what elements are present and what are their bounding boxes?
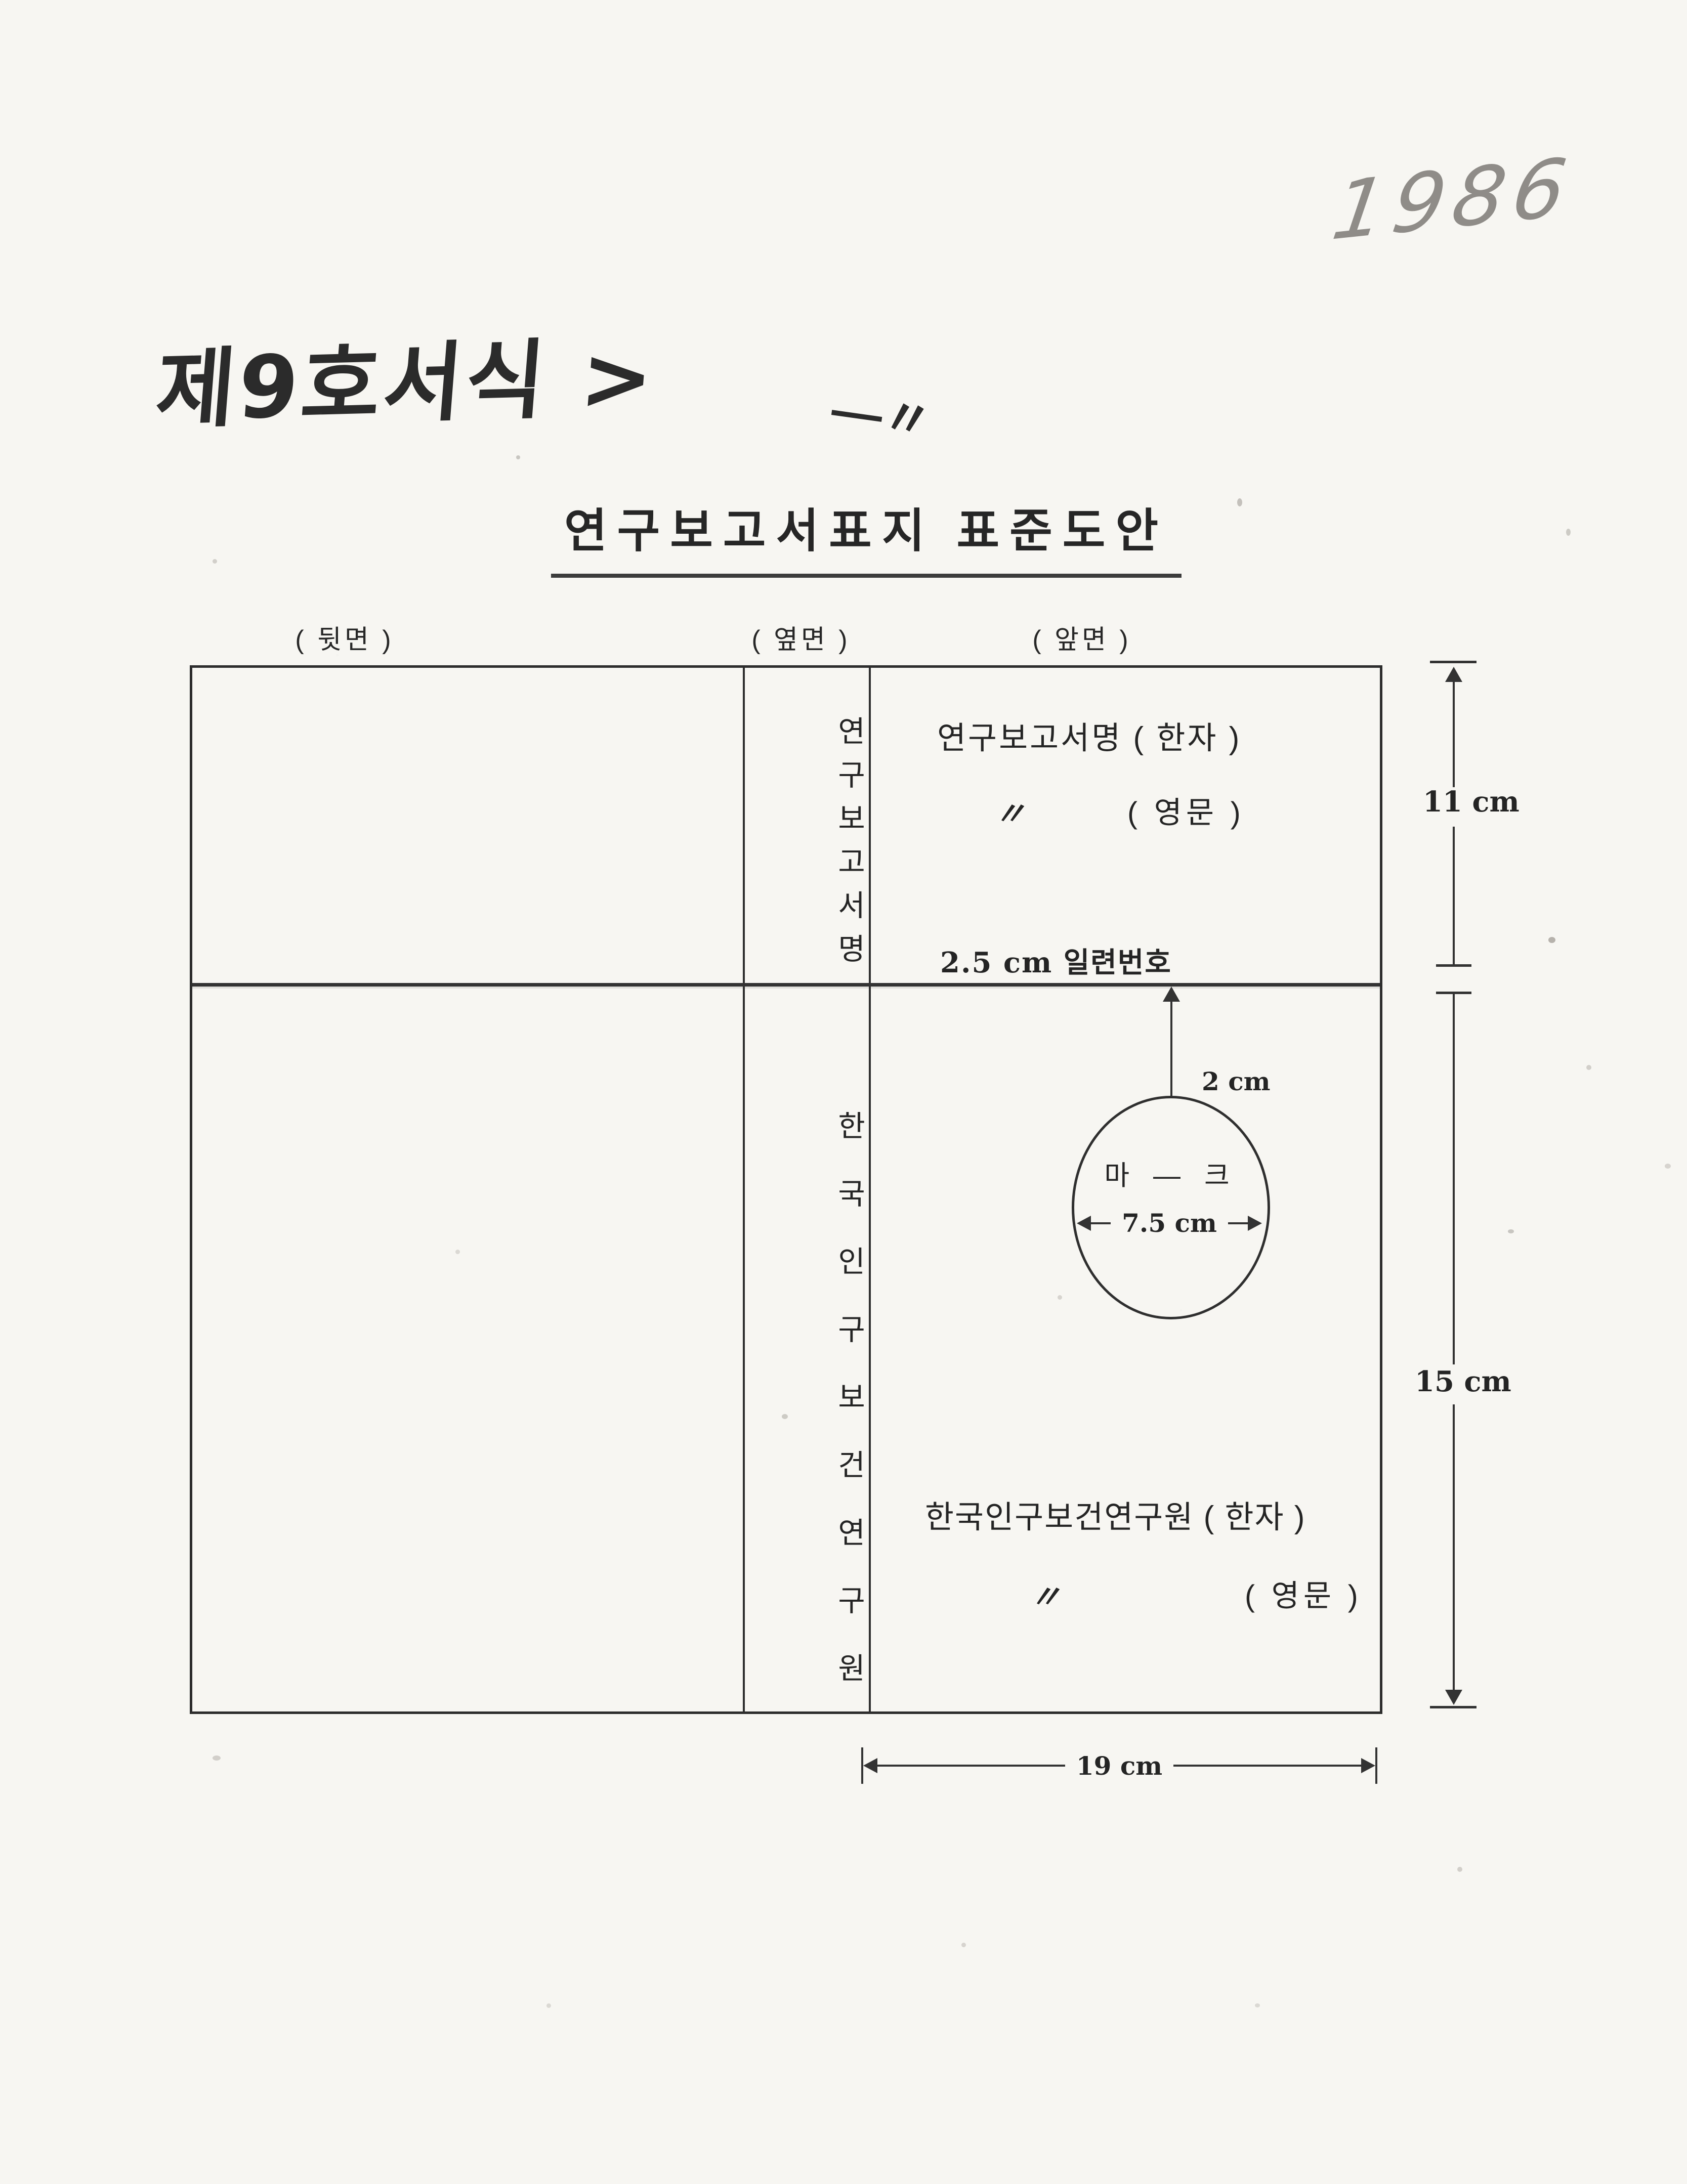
width-dimension: 19 cm	[861, 1747, 1377, 1784]
emblem-label: 마 ― 크	[1074, 1153, 1268, 1193]
scan-speckle	[1255, 2003, 1260, 2007]
handwritten-form-number: 제9호서식 >	[152, 307, 661, 445]
spine-left-border	[743, 668, 745, 1711]
front-institute-english: ( 영문 )	[1245, 1571, 1362, 1615]
mark-diameter-dimension: 7.5 cm	[1077, 1208, 1262, 1238]
left-arrowhead-icon	[863, 1758, 877, 1773]
front-report-title-hanja: 연구보고서명 ( 한자 )	[937, 712, 1241, 758]
scan-speckle	[1457, 1867, 1462, 1872]
front-institute-ditto: 〃	[1026, 1571, 1072, 1617]
scan-speckle	[546, 2003, 551, 2008]
spine-report-title-vertical: 연구보고서명	[827, 716, 870, 977]
scan-speckle	[782, 1414, 788, 1419]
dimension-line	[1453, 994, 1455, 1364]
panel-label-front: ( 앞면 )	[1032, 618, 1131, 656]
top-height-label: 11 cm	[1423, 785, 1520, 819]
width-label: 19 cm	[1065, 1751, 1173, 1781]
spine-institute-vertical: 한국인구보건연구원	[827, 1110, 870, 1721]
scan-speckle	[1586, 1065, 1591, 1070]
cover-diagram: 연구보고서명 한국인구보건연구원 연구보고서명 ( 한자 ) 〃 ( 영문 ) …	[190, 665, 1382, 1714]
dimension-line	[1091, 1222, 1111, 1224]
front-report-title-english: ( 영문 )	[1127, 788, 1245, 832]
right-arrowhead-icon	[1248, 1216, 1262, 1231]
scan-speckle	[961, 1943, 966, 1947]
page-title: 연구보고서표지 표준도안	[551, 493, 1182, 578]
handwritten-dash-mark: ―〃	[828, 368, 938, 454]
left-arrowhead-icon	[1077, 1216, 1091, 1231]
dimension-tick	[1375, 1747, 1377, 1784]
horizontal-divider	[192, 983, 1380, 987]
scan-speckle	[1665, 1164, 1671, 1169]
mark-diameter-label: 7.5 cm	[1111, 1208, 1228, 1238]
scan-speckle	[1548, 937, 1555, 943]
scan-speckle	[1566, 529, 1571, 536]
down-arrowhead-icon	[1445, 1690, 1462, 1705]
dimension-line	[1173, 1765, 1361, 1767]
mark-offset-label: 2 cm	[1202, 1066, 1271, 1096]
dimension-line	[1453, 827, 1455, 964]
dimension-line	[1453, 1404, 1455, 1694]
scanned-page: 1986 제9호서식 > ―〃 연구보고서표지 표준도안 ( 뒷면 ) ( 옆면…	[0, 0, 1687, 2184]
bottom-height-label: 15 cm	[1415, 1365, 1511, 1398]
panel-label-back: ( 뒷면 )	[295, 618, 394, 656]
right-arrowhead-icon	[1361, 1758, 1375, 1773]
scan-speckle	[213, 559, 217, 564]
front-report-title-ditto: 〃	[990, 788, 1036, 834]
scan-speckle	[1058, 1295, 1062, 1300]
serial-number-note: 2.5 cm 일련번호	[940, 940, 1172, 981]
scan-speckle	[516, 455, 520, 459]
scan-speckle	[1508, 1229, 1514, 1233]
handwritten-year: 1986	[1327, 140, 1580, 258]
scan-speckle	[455, 1250, 460, 1254]
dimension-line	[1453, 680, 1455, 787]
front-institute-hanja: 한국인구보건연구원 ( 한자 )	[925, 1491, 1305, 1537]
panel-label-side: ( 옆면 )	[751, 618, 850, 656]
dimension-bottom-cap	[1430, 1706, 1477, 1708]
scan-speckle	[213, 1755, 221, 1761]
mark-offset-arrow-line	[1170, 992, 1172, 1097]
dimension-top-cap	[1430, 661, 1477, 663]
dimension-line	[877, 1765, 1065, 1767]
dimension-line	[1228, 1222, 1248, 1224]
scan-speckle	[1237, 498, 1242, 506]
dimension-mid-cap	[1436, 964, 1471, 967]
emblem-circle: 마 ― 크	[1072, 1096, 1270, 1319]
